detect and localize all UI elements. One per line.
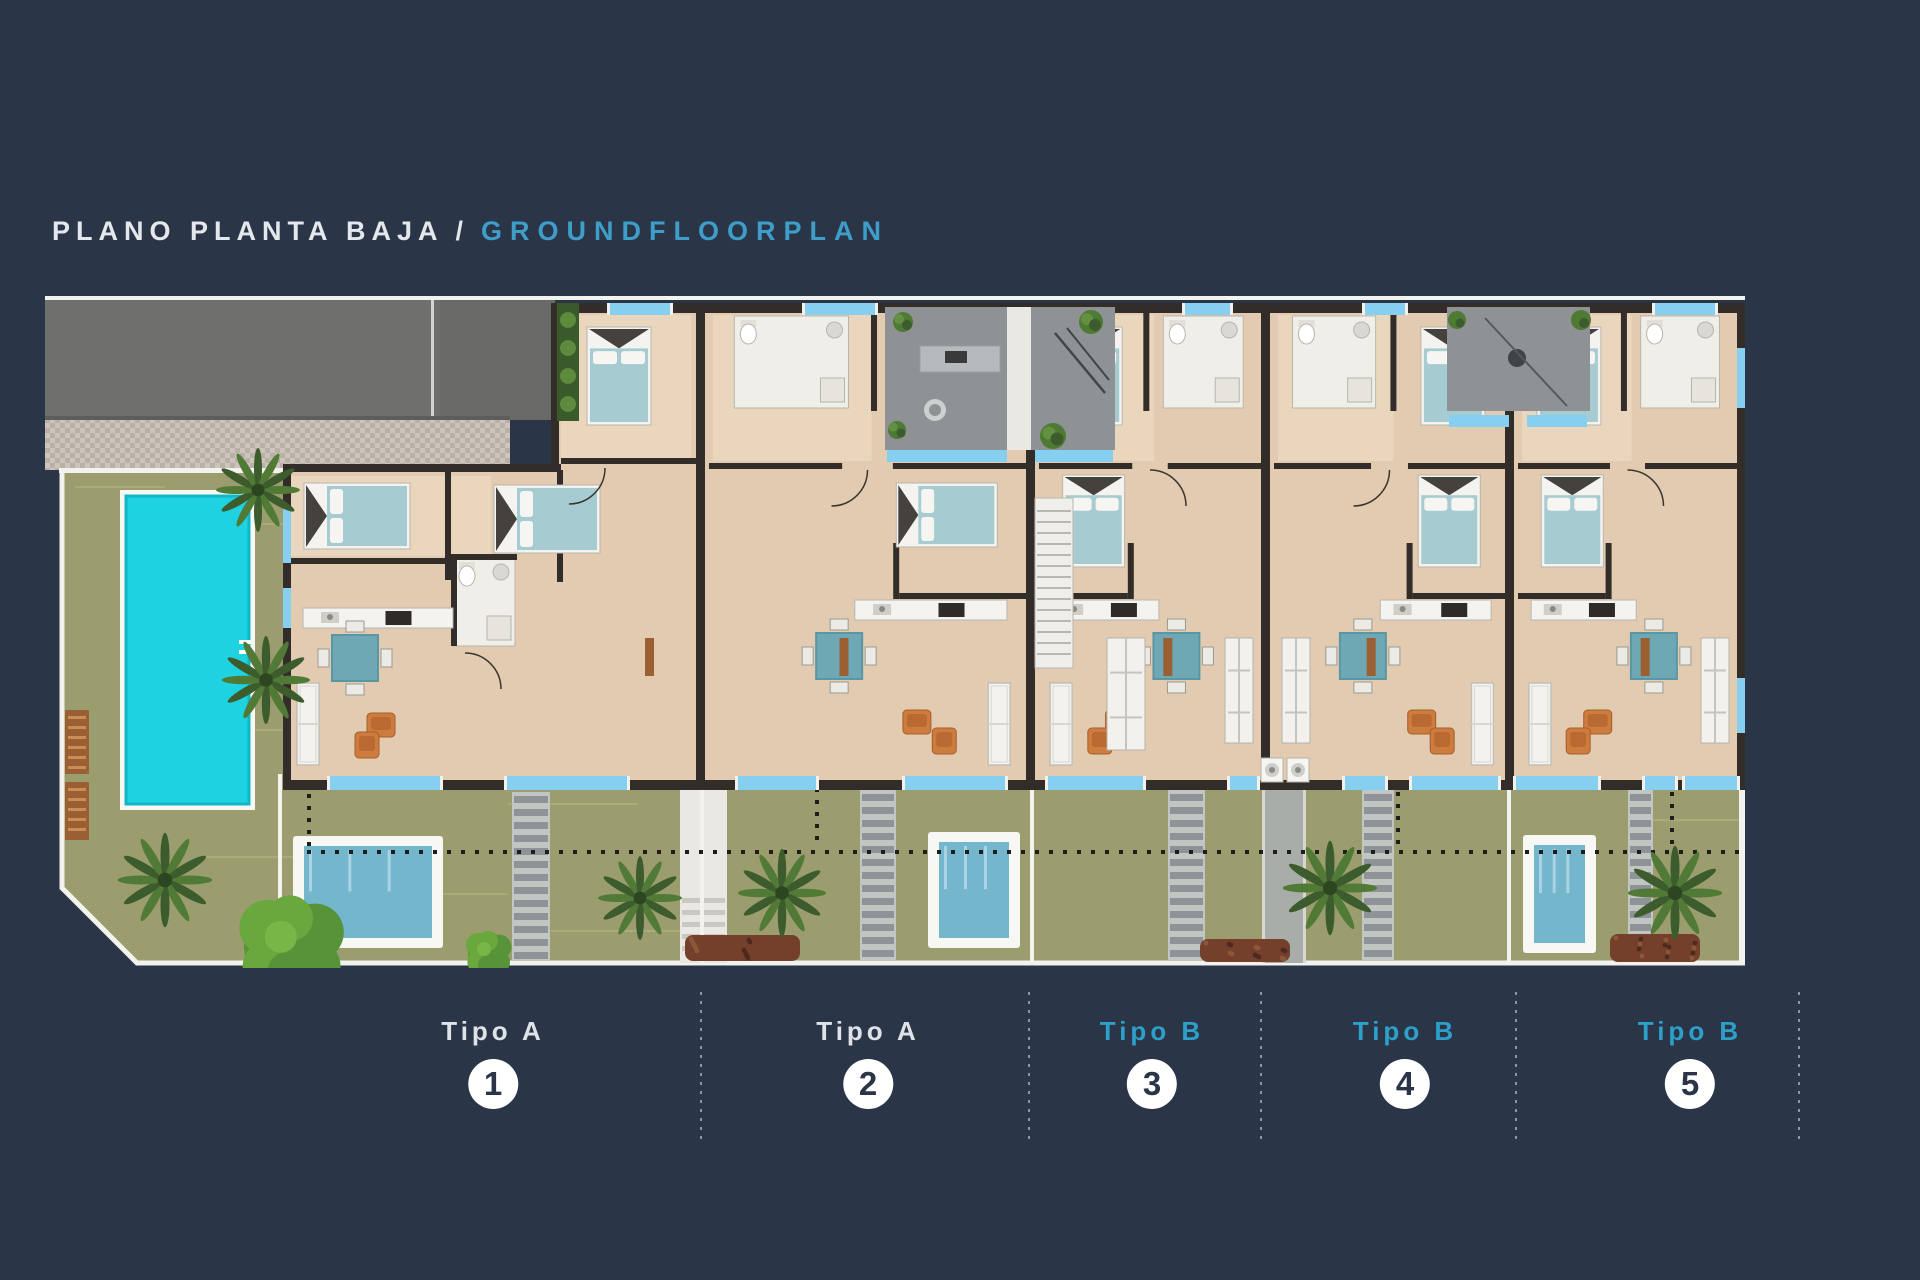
unit-type-label: Tipo A xyxy=(816,1016,919,1046)
unit-type-label: Tipo A xyxy=(441,1016,544,1046)
title-separator: / xyxy=(456,216,470,246)
slide-background: PLANO PLANTA BAJA/GROUNDFLOORPLAN Tipo A… xyxy=(0,0,1920,1280)
unit-label-3: Tipo B3 xyxy=(1100,1016,1204,1109)
planter xyxy=(557,303,579,421)
courtyard-2 xyxy=(1447,307,1591,427)
plunge-pool-3 xyxy=(1523,835,1596,953)
plunge-pool-2 xyxy=(928,832,1020,948)
unit-separator-line-5 xyxy=(1798,992,1800,1142)
entrance-stairs-3 xyxy=(1168,790,1205,960)
unit-separator-line-2 xyxy=(1028,992,1030,1142)
unit-separator-line-3 xyxy=(1260,992,1262,1142)
unit-label-4: Tipo B4 xyxy=(1353,1016,1457,1109)
unit-number-badge: 5 xyxy=(1665,1059,1715,1109)
unit-number-badge: 3 xyxy=(1127,1059,1177,1109)
unit-number-badge: 2 xyxy=(843,1059,893,1109)
page-title: PLANO PLANTA BAJA/GROUNDFLOORPLAN xyxy=(52,216,889,247)
unit-separator-line-1 xyxy=(700,992,702,1142)
unit-label-5: Tipo B5 xyxy=(1638,1016,1742,1109)
unit-number-badge: 4 xyxy=(1380,1059,1430,1109)
bush xyxy=(466,931,511,968)
mulch-bed xyxy=(1610,934,1700,962)
entrance-stairs-2 xyxy=(860,790,896,960)
entrance-stairs-1 xyxy=(512,792,550,960)
unit-label-1: Tipo A1 xyxy=(441,1016,544,1109)
courtyard-1 xyxy=(885,307,1115,462)
communal-pool xyxy=(120,490,255,810)
title-primary: PLANO PLANTA BAJA xyxy=(52,216,444,246)
mulch-bed xyxy=(685,935,800,961)
floor-plan-drawing xyxy=(45,258,1745,968)
floor-plan xyxy=(45,258,1745,968)
unit-type-label: Tipo B xyxy=(1353,1016,1457,1046)
unit-number-badge: 1 xyxy=(468,1059,518,1109)
mulch-bed xyxy=(1200,939,1290,962)
entrance-stairs-4 xyxy=(1362,790,1394,960)
unit-label-2: Tipo A2 xyxy=(816,1016,919,1109)
unit-type-label: Tipo B xyxy=(1100,1016,1204,1046)
unit-separator-line-4 xyxy=(1515,992,1517,1142)
title-secondary: GROUNDFLOORPLAN xyxy=(481,216,889,246)
unit-type-label: Tipo B xyxy=(1638,1016,1742,1046)
